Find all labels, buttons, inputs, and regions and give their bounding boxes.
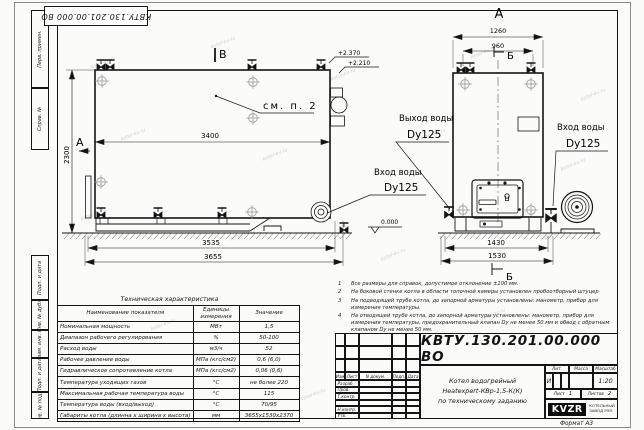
spec-cell: МВт <box>193 322 239 333</box>
col-data: Дата <box>406 372 420 380</box>
note-number: 1 <box>338 281 351 288</box>
spec-cell: 3655х1530х2370 <box>239 410 299 421</box>
scale-value: 1:20 <box>593 373 618 389</box>
scale-label: Масштаб <box>593 365 618 373</box>
rev-cell <box>392 333 406 346</box>
inlet2-dn: Dy125 <box>384 182 418 194</box>
sheet-value: 1 <box>569 391 573 397</box>
spec-cell: 50-100 <box>239 333 299 344</box>
spec-col-name: Наименование показателя <box>58 306 194 322</box>
inlet-flange <box>311 202 331 222</box>
logo-subtitle: КОТЕЛЬНЫЙ ЗАВОД РЭП <box>589 404 615 414</box>
col-doc: N докум. <box>359 372 392 380</box>
side-view-valves <box>97 60 349 233</box>
inlet-dn: Dy125 <box>566 138 600 150</box>
note-item: 4На отводящей трубе котла, до запорной а… <box>338 313 624 334</box>
format-label: Формат А3 <box>560 421 593 427</box>
spec-row: Температура воды (вход/выход)°С70/95 <box>58 399 300 410</box>
logo-sub-line2: ЗАВОД РЭП <box>589 408 612 413</box>
spec-cell: 1,5 <box>239 322 299 333</box>
see-note-text: см. п. 2 <box>263 101 318 112</box>
spec-cell: 52 <box>239 344 299 355</box>
elev-0000: 0.000 <box>381 219 398 226</box>
sight-glass <box>518 117 539 131</box>
view-label-a-front: А <box>495 7 504 22</box>
rev-cell <box>392 359 406 372</box>
drawing-sheet: kotel-kv.ru kotel-kv.ru kotel-kv.ru kote… <box>0 0 644 430</box>
spec-col-units: Единицы измерения <box>193 306 239 322</box>
spec-cell: % <box>193 333 239 344</box>
section-label-b-top: Б <box>507 51 514 62</box>
note-item: 1Все размеры для справок, допустимое отк… <box>338 281 624 288</box>
notes-list: 1Все размеры для справок, допустимое отк… <box>338 281 624 335</box>
mass-label: Масса <box>569 365 593 373</box>
note-number: 3 <box>338 298 351 312</box>
note-text: На подводящей трубе котла, до запорной а… <box>351 298 624 312</box>
spec-row: Температура уходящих газов°Сне более 220 <box>58 377 300 388</box>
dim-3535: 3535 <box>202 239 220 247</box>
spec-cell: мм <box>193 410 239 421</box>
front-view-valves <box>444 63 557 222</box>
spec-cell: 70/95 <box>239 399 299 410</box>
inlet2-label: Вход воды <box>374 168 421 178</box>
note-number: 2 <box>338 289 351 296</box>
spec-cell: не более 220 <box>239 377 299 388</box>
rev-cell <box>335 333 345 346</box>
note-text: На отводящей трубе котла, до запорной ар… <box>351 313 624 334</box>
lit-value: И <box>545 373 553 389</box>
doc-number: КВТУ.130.201.00.000 ВО <box>420 333 618 365</box>
spec-cell: Температура уходящих газов <box>58 377 194 388</box>
spec-cell: Номинальная мощность <box>58 322 194 333</box>
col-izm: Изм <box>335 372 345 380</box>
rev-cell <box>359 346 392 359</box>
logo-cell: KVZR КОТЕЛЬНЫЙ ЗАВОД РЭП <box>545 399 618 419</box>
product-name: Котел водогрейный Heatexpert-КВр-1,5-К(К… <box>420 365 545 419</box>
position-marks <box>94 74 538 219</box>
spec-cell: °С <box>193 399 239 410</box>
product-line3: по техническому заданию <box>438 397 527 407</box>
ground-front <box>438 233 601 239</box>
outlet-dn: Dy125 <box>407 129 441 141</box>
dim-1430: 1430 <box>487 239 505 247</box>
spec-row: Габариты котла (длинна х ширина х высота… <box>58 410 300 421</box>
spec-cell: 0,06 (0,6) <box>239 366 299 377</box>
spec-cell: Габариты котла (длинна х ширина х высота… <box>58 410 194 421</box>
elev-2370: +2.370 <box>338 50 360 57</box>
rev-cell <box>359 359 392 372</box>
flue-outlet <box>331 88 348 126</box>
title-block-left-grid: Изм Лист N докум. Подп. Дата Разраб. Про… <box>335 333 420 419</box>
sig-cell <box>392 413 406 420</box>
sig-cell <box>406 413 420 420</box>
spec-cell: Температура воды (вход/выход) <box>58 399 194 410</box>
note-item: 3На подводящей трубе котла, до запорной … <box>338 298 624 312</box>
note-text: Все размеры для справок, допустимое откл… <box>351 281 518 288</box>
rev-cell <box>392 346 406 359</box>
rev-cell <box>406 359 420 372</box>
sig-cell <box>359 413 392 420</box>
blower-fan <box>561 192 594 234</box>
mass-value <box>569 373 593 389</box>
rev-cell <box>406 346 420 359</box>
lit-cell <box>561 373 569 389</box>
section-b-bottom-tick <box>492 263 503 275</box>
product-line2: Heatexpert-КВр-1,5-К(К) <box>442 387 522 397</box>
spec-cell: Рабочее давление воды <box>58 355 194 366</box>
sheets-cell: Листов 2 <box>581 389 618 399</box>
dim-1260: 1260 <box>490 27 507 35</box>
rev-cell <box>359 333 392 346</box>
spec-col-value: Значение <box>239 306 299 322</box>
spec-cell: МПа (кгс/см2) <box>193 366 239 377</box>
spec-row: Расход водым3/ч52 <box>58 344 300 355</box>
dim-3400: 3400 <box>201 132 219 140</box>
rev-cell <box>345 333 359 346</box>
spec-row: Диапазон рабочего регулирования%50-100 <box>58 333 300 344</box>
spec-cell: Диапазон рабочего регулирования <box>58 333 194 344</box>
rev-cell <box>335 346 345 359</box>
spec-row: Рабочее давление водыМПа (кгс/см2)0,6 (6… <box>58 355 300 366</box>
rev-cell <box>345 346 359 359</box>
note-number: 4 <box>338 313 351 334</box>
row-utv: Утв. <box>335 413 359 420</box>
outlet-label: Выход воды <box>399 114 453 124</box>
spec-table-title: Техническая характеристика <box>57 296 282 303</box>
spec-cell: Максимальная рабочая температура воды <box>58 388 194 399</box>
inlet-label: Вход воды <box>557 123 604 133</box>
furnace-door <box>472 180 523 218</box>
spec-cell: °С <box>193 388 239 399</box>
kvzr-logo: KVZR <box>548 403 586 416</box>
view-label-b: В <box>219 48 227 61</box>
rev-cell <box>406 333 420 346</box>
spec-table: Наименование показателя Единицы измерени… <box>57 305 300 422</box>
col-podp: Подп. <box>392 372 406 380</box>
dim-2300: 2300 <box>63 146 71 164</box>
door-handle <box>479 200 496 205</box>
note-text: На боковой стенке котла в области топочн… <box>351 289 599 296</box>
spec-cell: 0,6 (6,0) <box>239 355 299 366</box>
col-list: Лист <box>345 372 359 380</box>
elevation-marks <box>329 57 402 233</box>
elev-2210: +2.210 <box>348 60 370 67</box>
rev-cell <box>335 359 345 372</box>
sheet-label: Лист <box>554 392 565 397</box>
sheets-value: 2 <box>608 391 612 397</box>
dim-3655: 3655 <box>204 253 222 261</box>
sheet-cell: Лист 1 <box>545 389 581 399</box>
spec-row: Номинальная мощностьМВт1,5 <box>58 322 300 333</box>
spec-cell: м3/ч <box>193 344 239 355</box>
spec-cell: °С <box>193 377 239 388</box>
side-view <box>86 70 348 231</box>
view-label-a-side: А <box>76 136 84 149</box>
spec-row: Гидравлическое сопротивление котлаМПа (к… <box>58 366 300 377</box>
dim-1530: 1530 <box>488 252 506 260</box>
lit-label: Лит. <box>545 365 569 373</box>
spec-cell: 115 <box>239 388 299 399</box>
spec-cell: Расход воды <box>58 344 194 355</box>
lit-cell <box>553 373 561 389</box>
product-line1: Котел водогрейный <box>449 377 516 387</box>
sheets-label: Листов <box>588 392 604 397</box>
spec-header-row: Наименование показателя Единицы измерени… <box>58 306 300 322</box>
note-item: 2На боковой стенке котла в области топоч… <box>338 289 624 296</box>
spec-row: Максимальная рабочая температура воды°С1… <box>58 388 300 399</box>
rev-cell <box>345 359 359 372</box>
spec-cell: Гидравлическое сопротивление котла <box>58 366 194 377</box>
spec-cell: МПа (кгс/см2) <box>193 355 239 366</box>
